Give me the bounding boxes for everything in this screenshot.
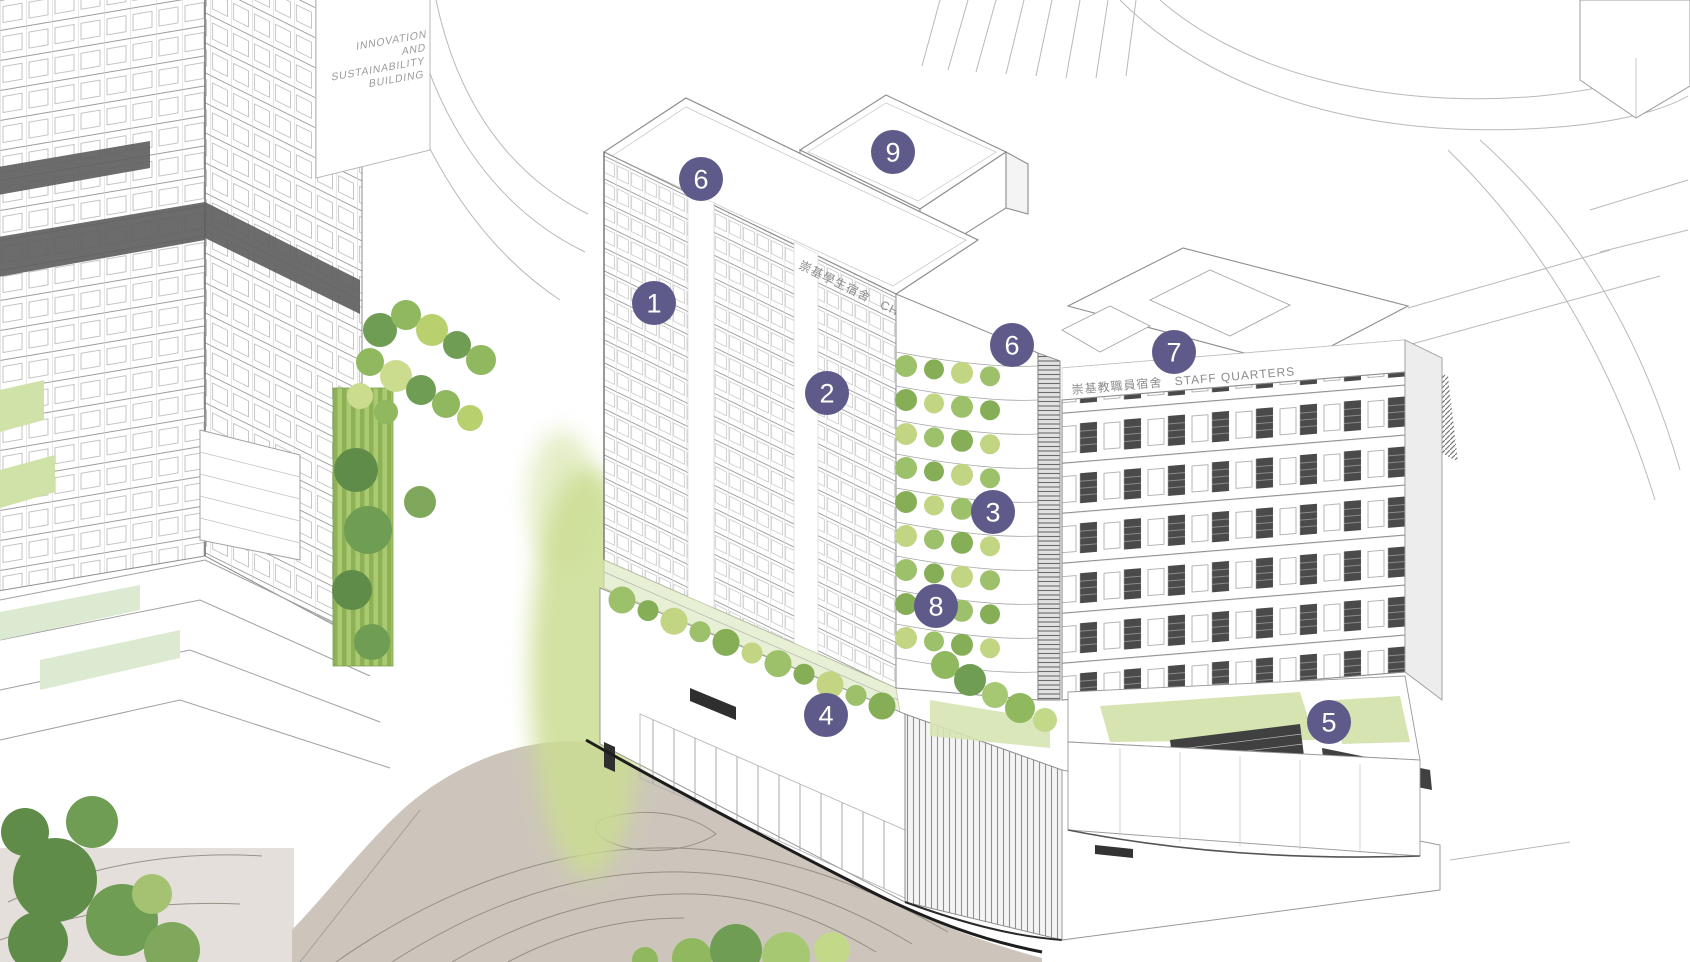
marker-4: 4 [804, 693, 848, 737]
marker-9: 9 [871, 130, 915, 174]
marker-1: 1 [632, 281, 676, 325]
terrace-lawn [0, 585, 140, 640]
site-illustration: INNOVATION AND SUSTAINABILITY BUILDING [0, 0, 1690, 962]
svg-text:2: 2 [819, 379, 834, 409]
background-upper-right-block [1580, 0, 1690, 118]
svg-text:6: 6 [1004, 331, 1019, 361]
podium-curved-rib-wall [905, 714, 1062, 940]
svg-text:9: 9 [885, 138, 900, 168]
staff-side-face [1405, 340, 1442, 700]
svg-text:8: 8 [928, 592, 943, 622]
facade-core-strip [688, 190, 714, 608]
svg-text:6: 6 [693, 165, 708, 195]
marker-6: 6 [990, 323, 1034, 367]
marker-6: 6 [679, 157, 723, 201]
marker-3: 3 [971, 490, 1015, 534]
marker-8: 8 [914, 584, 958, 628]
facade-core-strip [794, 242, 818, 654]
svg-text:1: 1 [646, 289, 661, 319]
marker-5: 5 [1307, 700, 1351, 744]
staff-quarters-building: 崇基教職員宿舍 STAFF QUARTERS [1062, 248, 1442, 857]
terrace-lawn [40, 630, 180, 690]
marker-2: 2 [805, 371, 849, 415]
svg-text:7: 7 [1166, 338, 1181, 368]
svg-text:5: 5 [1321, 708, 1336, 738]
architectural-axonometric-view: INNOVATION AND SUSTAINABILITY BUILDING [0, 0, 1690, 962]
svg-text:3: 3 [985, 498, 1000, 528]
glazed-core-strip [1038, 353, 1060, 700]
staff-facade [1062, 372, 1405, 700]
marker-7: 7 [1152, 330, 1196, 374]
svg-text:4: 4 [818, 701, 833, 731]
